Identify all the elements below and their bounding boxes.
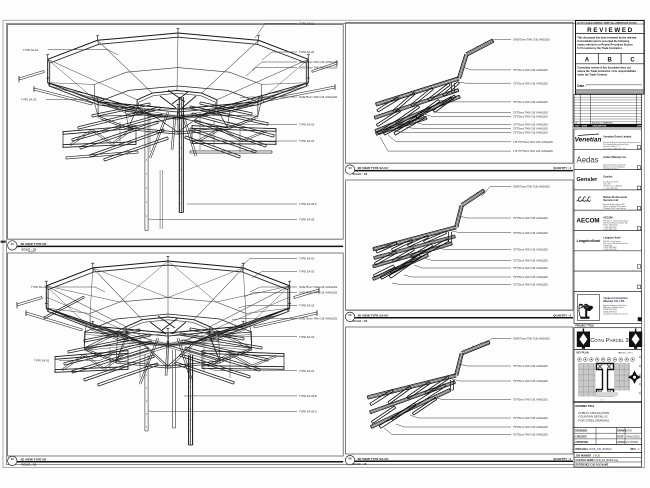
svg-text:TYPE SA-02: TYPE SA-02: [299, 304, 315, 308]
svg-text:01: 01: [11, 242, 15, 246]
svg-text:REV: REV: [631, 447, 637, 451]
svg-text:Services Ltd.: Services Ltd.: [603, 199, 619, 202]
svg-text:(Macau) CO, LTD.: (Macau) CO, LTD.: [603, 299, 625, 303]
svg-text:Langdon Seah: Langdon Seah: [603, 237, 621, 240]
svg-text:SCALE : 1/5: SCALE : 1/5: [353, 319, 368, 323]
svg-text:75*75mm THK G.B.I ANGLES: 75*75mm THK G.B.I ANGLES: [513, 81, 548, 85]
svg-text:L75 75*75mm THK G.B.I ANGLES: L75 75*75mm THK G.B.I ANGLES: [513, 149, 553, 153]
svg-text:C: C: [630, 57, 635, 63]
svg-text:3-SUB_FD_8N004: 3-SUB_FD_8N004: [587, 447, 612, 451]
svg-text:SHS/75mm THK G.B.I ANGLES: SHS/75mm THK G.B.I ANGLES: [513, 37, 550, 41]
svg-text:TYPE SA-05: TYPE SA-05: [299, 218, 315, 222]
svg-text:Date :: Date :: [577, 84, 586, 88]
svg-text:JOB NUMBER: JOB NUMBER: [576, 455, 592, 457]
svg-text:SCALE: SCALE: [617, 441, 625, 444]
svg-text:B: B: [608, 57, 613, 63]
svg-text:SCALE : 1/5: SCALE : 1/5: [353, 172, 368, 176]
svg-text:TYPE SA-04: TYPE SA-04: [299, 139, 315, 143]
svg-text:04: 04: [348, 166, 352, 170]
svg-text:LangdonSeah: LangdonSeah: [577, 239, 602, 243]
svg-text:SHS/75mm THK G.B.I ANGLES: SHS/75mm THK G.B.I ANGLES: [299, 60, 337, 64]
svg-text:DRAWING TITLE: DRAWING TITLE: [575, 405, 594, 408]
svg-text:14/AUG/2015: 14/AUG/2015: [626, 435, 641, 438]
svg-text:SHS/75mm THK G.B.I ANGLES: SHS/75mm THK G.B.I ANGLES: [299, 290, 337, 294]
svg-text:TYPE SA-01: TYPE SA-01: [299, 22, 315, 26]
svg-text:SHS/75mm THK G.B.I ANGLES: SHS/75mm THK G.B.I ANGLES: [299, 285, 337, 289]
svg-text:SHS/75mm THK G.B.I ANGLES: SHS/75mm THK G.B.I ANGLES: [299, 317, 337, 321]
svg-text:75*75mm THK G.B.I ANGLES: 75*75mm THK G.B.I ANGLES: [513, 111, 548, 115]
svg-text:AS SHOWN: AS SHOWN: [626, 441, 639, 444]
svg-text:KEY PLAN: KEY PLAN: [577, 352, 589, 355]
svg-text:FOR STEEL DRAWING: FOR STEEL DRAWING: [579, 419, 610, 423]
svg-text:SCALE : 1/5: SCALE : 1/5: [353, 463, 368, 466]
svg-text:3-SUB: 3-SUB: [593, 455, 600, 457]
svg-text:3D VIEW TYPE 5H': 3D VIEW TYPE 5H': [21, 457, 48, 461]
svg-text:TYPE SA-03: TYPE SA-03: [299, 123, 315, 127]
svg-text:PARCEL 1 OF 3: PARCEL 1 OF 3: [618, 352, 633, 355]
svg-text:75*75mm THK G.B.I ANGLES: 75*75mm THK G.B.I ANGLES: [513, 425, 548, 429]
svg-text:CAD FILE NAME: CAD FILE NAME: [576, 459, 594, 462]
svg-text:75*75mm THK G.B.I ANGLES: 75*75mm THK G.B.I ANGLES: [513, 283, 548, 287]
svg-text:SHS/75mm THK G.B.I ANGLES: SHS/75mm THK G.B.I ANGLES: [299, 66, 337, 70]
svg-text:QUANTITY : 4: QUANTITY : 4: [553, 313, 571, 317]
svg-text:Aedas: Aedas: [577, 156, 599, 165]
svg-text:CHECKED: CHECKED: [575, 436, 587, 438]
svg-text:under the Trade Contract.: under the Trade Contract.: [577, 74, 608, 77]
svg-text:AECOM: AECOM: [577, 218, 600, 225]
svg-text:TYPE SA-04: TYPE SA-04: [299, 369, 315, 373]
svg-text:06: 06: [348, 457, 352, 461]
svg-text:TYPE SA-02: TYPE SA-02: [299, 50, 315, 54]
svg-text:75*75mm THK G.B.I ANGLES: 75*75mm THK G.B.I ANGLES: [513, 100, 548, 104]
svg-text:Gensler: Gensler: [577, 177, 599, 183]
svg-text:3-SUB_FD_8N004.dwg: 3-SUB_FD_8N004.dwg: [594, 460, 619, 462]
svg-text:75*75mm THK G.B.I ANGLES: 75*75mm THK G.B.I ANGLES: [513, 433, 548, 437]
svg-text:ℒℒℒ: ℒℒℒ: [577, 197, 591, 204]
svg-text:Aedas (Macau) Ltd.: Aedas (Macau) Ltd.: [603, 156, 626, 159]
svg-text:TYPE SA-01: TYPE SA-01: [34, 358, 50, 362]
svg-text:APPROVED: APPROVED: [575, 441, 588, 444]
svg-text:L75 75*75mm THK G.B.I ANGLES: L75 75*75mm THK G.B.I ANGLES: [513, 140, 553, 144]
svg-text:05: 05: [348, 313, 352, 317]
svg-text:www.yaoke-construction.com.mo: www.yaoke-construction.com.mo: [603, 313, 628, 316]
svg-text:75*75mm THK G.B.I ANGLES: 75*75mm THK G.B.I ANGLES: [513, 259, 548, 263]
svg-text:3D VIEW TYPE SA-03': 3D VIEW TYPE SA-03': [358, 457, 389, 461]
svg-text:Venetian: Venetian: [575, 137, 602, 144]
svg-text:TYPE SA-01: TYPE SA-01: [299, 256, 315, 260]
svg-text:75*75mm THK G.B.I ANGLES: 75*75mm THK G.B.I ANGLES: [513, 68, 548, 72]
svg-text:75*75mm THK G.B.I ANGLES: 75*75mm THK G.B.I ANGLES: [513, 398, 548, 402]
svg-text:Venetian Orient Limited: Venetian Orient Limited: [603, 135, 631, 138]
svg-text:TYPE SA-01: TYPE SA-01: [23, 48, 39, 52]
svg-text:75*75mm THK G.B.I ANGLES: 75*75mm THK G.B.I ANGLES: [513, 216, 548, 220]
svg-text:TYPE SA-05: TYPE SA-05: [299, 270, 315, 274]
svg-text:t + 1.415.433.3700: t + 1.415.433.3700: [603, 187, 617, 190]
svg-text:75*75mm THK G.B.I ANGLES: 75*75mm THK G.B.I ANGLES: [513, 127, 548, 131]
svg-text:75*75mm THK G.B.I ANGLES: 75*75mm THK G.B.I ANGLES: [513, 266, 548, 270]
svg-text:DESCRIPTION: DESCRIPTION: [593, 126, 607, 128]
svg-text:13 Andar, ICBC Tower, Macau: 13 Andar, ICBC Tower, Macau: [603, 207, 626, 210]
svg-text:TYPE SA-05 B: TYPE SA-05 B: [299, 394, 317, 398]
svg-text:DWG NO: DWG NO: [576, 447, 587, 451]
svg-text:QUANTITY : 4: QUANTITY : 4: [553, 166, 571, 170]
svg-text:75*75mm THK G.B.I ANGLES: 75*75mm THK G.B.I ANGLES: [513, 416, 548, 420]
svg-text:R E V I E W E D: R E V I E W E D: [587, 27, 633, 34]
svg-text:A: A: [585, 57, 590, 63]
svg-text:02: 02: [11, 457, 15, 461]
svg-text:REFERENCE CAD FILE NAME: REFERENCE CAD FILE NAME: [576, 464, 609, 467]
svg-text:SHS/75mm THK G.B.I ANGLES: SHS/75mm THK G.B.I ANGLES: [513, 337, 550, 341]
svg-text:75*75mm THK G.B.I ANGLES: 75*75mm THK G.B.I ANGLES: [513, 231, 548, 235]
svg-text:APP: APP: [637, 125, 642, 128]
svg-text:A: A: [638, 447, 640, 451]
svg-text:DATE: DATE: [582, 125, 588, 128]
svg-text:3D VIEW TYPE SA-01': 3D VIEW TYPE SA-01': [358, 166, 389, 170]
svg-text:75*75mm THK G.B.I ANGLES: 75*75mm THK G.B.I ANGLES: [513, 379, 548, 383]
svg-text:AECOM: AECOM: [603, 216, 612, 219]
svg-text:75*75mm THK G.B.I ANGLES: 75*75mm THK G.B.I ANGLES: [513, 275, 548, 279]
svg-text:3D VIEW TYPE SA-02': 3D VIEW TYPE SA-02': [358, 313, 389, 317]
svg-text:TYPE SA-05 A: TYPE SA-05 A: [299, 202, 317, 206]
svg-text:TYPE SA-05 A: TYPE SA-05 A: [299, 410, 317, 414]
svg-text:75*75mm THK G.B.I ANGLES: 75*75mm THK G.B.I ANGLES: [513, 123, 548, 127]
svg-text:DESIGNED: DESIGNED: [575, 431, 587, 433]
svg-text:SHS/75mm THK G.B.I ANGLES: SHS/75mm THK G.B.I ANGLES: [299, 95, 337, 99]
svg-text:TYPE SA-02: TYPE SA-02: [31, 285, 47, 289]
svg-text:TYPE SA-03: TYPE SA-03: [299, 335, 315, 339]
svg-text:5.4 for action by the Trade Co: 5.4 for action by the Trade Contractor.: [577, 47, 622, 50]
svg-text:SCALE : 1/5: SCALE : 1/5: [22, 462, 37, 466]
svg-text:QUANTITY : 4: QUANTITY : 4: [553, 457, 571, 461]
svg-text:DATE: DATE: [617, 435, 624, 438]
svg-text:75*75mm THK G.B.I ANGLES: 75*75mm THK G.B.I ANGLES: [513, 364, 548, 368]
svg-text:75*75mm THK G.B.I ANGLES: 75*75mm THK G.B.I ANGLES: [513, 131, 548, 135]
svg-text:75*75mm THK G.B.I ANGLES: 75*75mm THK G.B.I ANGLES: [513, 247, 548, 251]
svg-text:Gensler: Gensler: [603, 176, 612, 179]
svg-text:LYNO: LYNO: [626, 431, 632, 433]
svg-text:SCALE : 1/5: SCALE : 1/5: [22, 248, 37, 252]
svg-text:75*75mm THK G.B.I ANGLES: 75*75mm THK G.B.I ANGLES: [513, 115, 548, 119]
svg-text:3D VIEW TYPE 5H': 3D VIEW TYPE 5H': [21, 242, 48, 246]
svg-text:REV: REV: [575, 126, 580, 128]
svg-text:PROJECT TITLE: PROJECT TITLE: [575, 325, 594, 328]
svg-text:SHS/75mm THK G.B.I ANGLES: SHS/75mm THK G.B.I ANGLES: [513, 185, 550, 189]
svg-text:TYPE SA-02: TYPE SA-02: [21, 98, 37, 102]
